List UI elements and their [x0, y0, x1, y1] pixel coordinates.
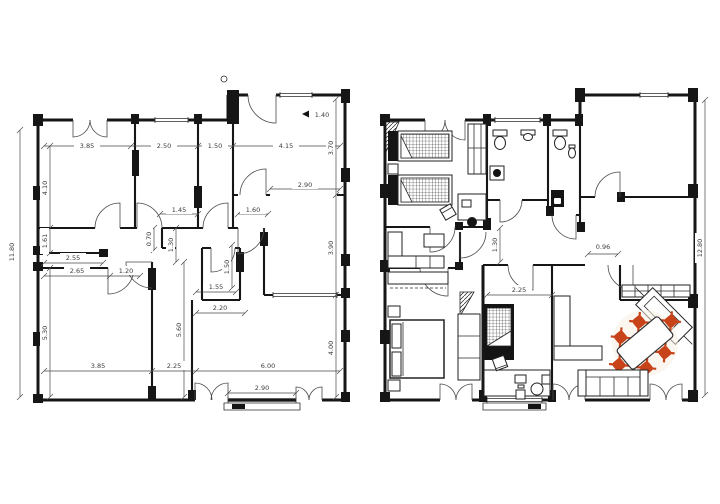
svg-text:3.90: 3.90 [327, 241, 335, 255]
svg-text:1.45: 1.45 [172, 206, 186, 214]
dim-label-v-hall-a: 0.70 [144, 226, 153, 252]
chair [440, 204, 456, 220]
door-arc [460, 232, 486, 258]
dim-label-v-mid-bot: 5.60 [174, 317, 183, 343]
dim-label-overall-left: 11.80 [7, 237, 16, 267]
dim-label-passage: 0.96 [590, 242, 616, 251]
window [640, 92, 668, 98]
single-bed [388, 131, 452, 161]
dim-label-v-right-top: 3.70 [326, 135, 335, 161]
right-plan: 1.30 2.25 0.96 12.80 [380, 88, 708, 410]
svg-text:1.60: 1.60 [246, 206, 260, 214]
svg-text:3.85: 3.85 [91, 362, 105, 370]
l-sofa-seat [554, 346, 602, 360]
svg-text:2.50: 2.50 [157, 142, 171, 150]
stool [531, 383, 543, 395]
svg-text:12.80: 12.80 [696, 239, 704, 258]
nightstand [388, 380, 400, 391]
monitor [462, 200, 471, 207]
bathroom-2-fixtures [551, 130, 576, 207]
dim-label-wc-b: 2.20 [207, 303, 233, 312]
svg-text:0.96: 0.96 [596, 243, 610, 251]
svg-text:1.30: 1.30 [491, 238, 499, 252]
door-arc [666, 384, 682, 400]
svg-text:1.55: 1.55 [209, 283, 223, 291]
pillow [392, 352, 401, 376]
dim-label-v-room-tl: 4.10 [40, 175, 49, 201]
dim-label-v-right-bot: 4.00 [326, 335, 335, 361]
desk-item [516, 390, 525, 399]
dim-label-top-b: 2.50 [151, 141, 177, 150]
svg-text:6.00: 6.00 [261, 362, 275, 370]
svg-text:4.00: 4.00 [327, 341, 335, 355]
window [273, 292, 337, 298]
master-bedroom-furniture [388, 272, 480, 391]
svg-text:4.10: 4.10 [41, 181, 49, 195]
window [155, 117, 188, 123]
dim-label-closet-b: 2.65 [64, 266, 90, 275]
door-arc [240, 169, 266, 195]
floorplan-svg: 11.80 3.85 2.50 1.50 4.15 1.40 4.10 1.61… [0, 0, 720, 504]
twin-bedroom-furniture [388, 124, 486, 227]
door-arc [211, 383, 228, 400]
svg-text:2.90: 2.90 [255, 384, 269, 392]
svg-text:2.25: 2.25 [512, 286, 526, 294]
dim-label-bottom-b: 2.25 [161, 361, 187, 370]
door-arc [95, 203, 120, 228]
entry-arrow [302, 110, 310, 118]
bathroom-1-fixtures [490, 130, 535, 180]
svg-text:2.20: 2.20 [213, 304, 227, 312]
dim-label-closet-a: 2.55 [60, 253, 86, 262]
monitor [515, 375, 526, 383]
dim-label-v-hall-b: 1.30 [166, 232, 175, 258]
svg-text:1.30: 1.30 [167, 238, 175, 252]
svg-text:3.85: 3.85 [80, 142, 94, 150]
single-bed [388, 175, 452, 205]
pillow [392, 324, 401, 348]
svg-text:1.50: 1.50 [223, 260, 231, 274]
sofa-arm [640, 370, 648, 396]
door-arc [73, 120, 90, 137]
dim-label-top-d: 4.15 [273, 141, 299, 150]
dim-label-hall: 1.30 [490, 232, 499, 258]
svg-text:1.40: 1.40 [315, 111, 329, 119]
svg-text:2.90: 2.90 [298, 181, 312, 189]
nightstand [388, 306, 400, 317]
svg-text:1.61: 1.61 [41, 234, 49, 248]
sink [521, 130, 535, 141]
svg-text:3.70: 3.70 [327, 141, 335, 155]
svg-text:2.25: 2.25 [167, 362, 181, 370]
left-plan: 11.80 3.85 2.50 1.50 4.15 1.40 4.10 1.61… [7, 76, 350, 410]
dim-label-hall-b: 1.60 [240, 205, 266, 214]
door-arc [440, 384, 456, 400]
wall-insulation-wedge [460, 292, 474, 316]
svg-text:5.60: 5.60 [175, 323, 183, 337]
dim-label-wc-a: 1.55 [203, 282, 229, 291]
window-sill-block [232, 404, 245, 409]
dim-label-v-left-mid: 1.61 [40, 228, 49, 254]
window [280, 92, 312, 98]
dim-label-office: 2.25 [506, 285, 532, 294]
desk-item [542, 375, 550, 384]
door-arc [90, 120, 107, 137]
sink [569, 145, 576, 158]
dim-label-top-c: 1.50 [202, 141, 228, 150]
shower-tray [554, 198, 561, 204]
svg-text:1.50: 1.50 [208, 142, 222, 150]
toilet [553, 130, 567, 150]
window [495, 117, 540, 123]
nightstand [388, 164, 398, 174]
door-arc [500, 200, 522, 222]
floor-plan-canvas: 11.80 3.85 2.50 1.50 4.15 1.40 4.10 1.61… [0, 0, 720, 504]
living-room-furniture [554, 279, 701, 396]
svg-text:11.80: 11.80 [8, 243, 16, 262]
door-arc [309, 387, 322, 400]
desk-chair [467, 217, 477, 227]
interior-walls [38, 95, 345, 400]
svg-text:2.55: 2.55 [66, 254, 80, 262]
door-arc [296, 387, 309, 400]
dim-label-bottom-c: 6.00 [255, 361, 281, 370]
dim-label-v-wc: 1.50 [222, 254, 231, 280]
dim-label-overall-right: 12.80 [695, 233, 704, 263]
wardrobe [458, 314, 480, 380]
washer-drum [493, 169, 501, 177]
door-arc [195, 383, 212, 400]
dim-label-top-a: 3.85 [74, 141, 100, 150]
dresser [388, 272, 448, 284]
svg-text:1.20: 1.20 [119, 267, 133, 275]
sofa [578, 370, 648, 396]
svg-text:0.70: 0.70 [145, 232, 153, 246]
svg-text:4.15: 4.15 [279, 142, 293, 150]
dim-label-v-left-bot: 5.30 [40, 320, 49, 346]
door-arc [456, 384, 472, 400]
wardrobe [468, 124, 486, 174]
door-arc [552, 215, 576, 239]
dim-label-bottom-a: 3.85 [85, 361, 111, 370]
sofa-arm [578, 370, 586, 396]
dim-label-bottom-window: 2.90 [249, 383, 275, 392]
toilet [493, 130, 507, 150]
window-sill-block [528, 404, 541, 409]
door-arc [595, 172, 620, 197]
dim-label-patio: 2.90 [292, 180, 318, 189]
dimension-labels: 11.80 3.85 2.50 1.50 4.15 1.40 4.10 1.61… [7, 110, 335, 392]
door-arc [203, 203, 228, 228]
dim-label-v-right-mid: 3.90 [326, 235, 335, 261]
dim-label-closet-door: 1.20 [113, 266, 139, 275]
column-marker [221, 76, 227, 82]
svg-text:2.65: 2.65 [70, 267, 84, 275]
door-arc [248, 95, 276, 123]
office-furniture [484, 304, 550, 399]
svg-text:5.30: 5.30 [41, 326, 49, 340]
dim-label-entry: 1.40 [309, 110, 335, 119]
side-table [424, 234, 444, 247]
keyboard [518, 385, 524, 388]
door-arc [650, 384, 666, 400]
sitting-nook-furniture [388, 232, 444, 268]
dim-label-hall-a: 1.45 [166, 205, 192, 214]
